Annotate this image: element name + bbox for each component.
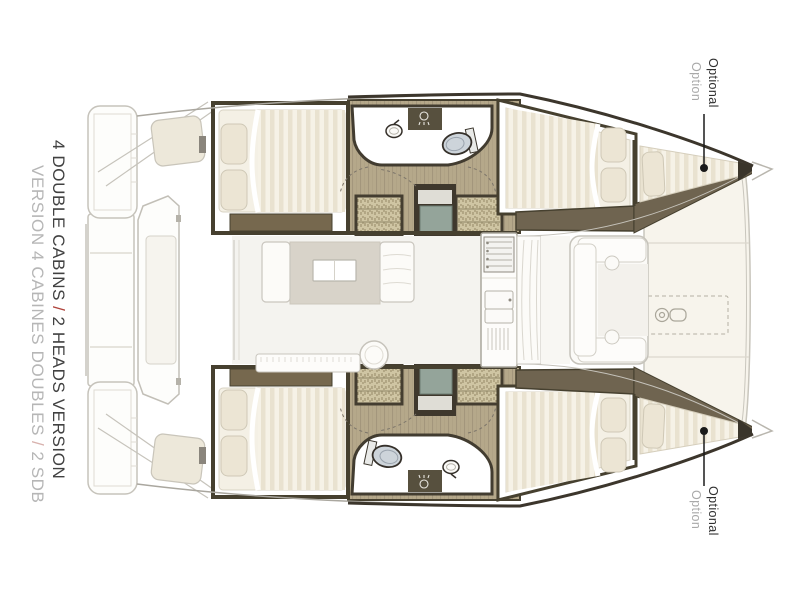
cockpit-sole [598, 264, 648, 336]
aft-cabin [213, 103, 348, 233]
transom-steps [88, 106, 137, 218]
title-en-separator: / [49, 306, 68, 311]
sofa-left [262, 242, 290, 302]
bow-pulpit-outline [752, 162, 772, 180]
cabin-shelf [230, 214, 332, 231]
companionway [414, 184, 456, 236]
hull-port [88, 94, 772, 236]
callout-dot [700, 164, 708, 172]
forward-cockpit [517, 236, 648, 364]
optional-label-top-en: Optional [704, 58, 721, 108]
title-en-part2: 2 HEADS VERSION [49, 316, 68, 479]
pillow [601, 168, 626, 202]
table-pedestal [605, 330, 619, 344]
bed-duvet [506, 108, 598, 208]
pillow [221, 170, 247, 210]
saloon [232, 233, 517, 372]
saloon-table [313, 260, 356, 281]
title-english: 4 DOUBLE CABINS/2 HEADS VERSION [48, 140, 68, 479]
pillow [601, 128, 626, 162]
table-pedestal [605, 256, 619, 270]
galley-sink-icon [485, 291, 513, 323]
layout-plan-page: 4 DOUBLE CABINS/2 HEADS VERSION VERSION … [0, 0, 800, 600]
title-fr-part1: VERSION 4 CABINES DOUBLES [28, 165, 47, 436]
hull-starboard [88, 364, 772, 506]
aft-bench [256, 354, 360, 372]
floor-plan-drawing [0, 0, 800, 600]
optional-label-bottom-fr: Option [687, 490, 704, 529]
shower-unit [408, 108, 442, 130]
galley-island [481, 233, 517, 367]
aft-deck-seat [150, 115, 205, 167]
title-fr-separator: / [28, 441, 47, 446]
cockpit-bench [138, 196, 181, 404]
optional-label-top-fr: Option [687, 62, 704, 101]
deck-fitting [199, 136, 206, 153]
walkway [541, 236, 570, 364]
chaise-lounge [380, 242, 414, 302]
pillow [221, 124, 247, 164]
pillow [642, 151, 665, 196]
stern-platform [86, 214, 134, 386]
swivel-seat [360, 341, 388, 369]
callout-dot [700, 427, 708, 435]
bed-duvet [258, 110, 345, 212]
title-french: VERSION 4 CABINES DOUBLES/2 SDB [27, 165, 47, 504]
stove-icon [484, 237, 514, 272]
title-en-part1: 4 DOUBLE CABINS [49, 140, 68, 301]
optional-label-bottom-en: Optional [704, 486, 721, 536]
title-fr-part2: 2 SDB [28, 451, 47, 503]
seat-backrest [574, 244, 596, 356]
